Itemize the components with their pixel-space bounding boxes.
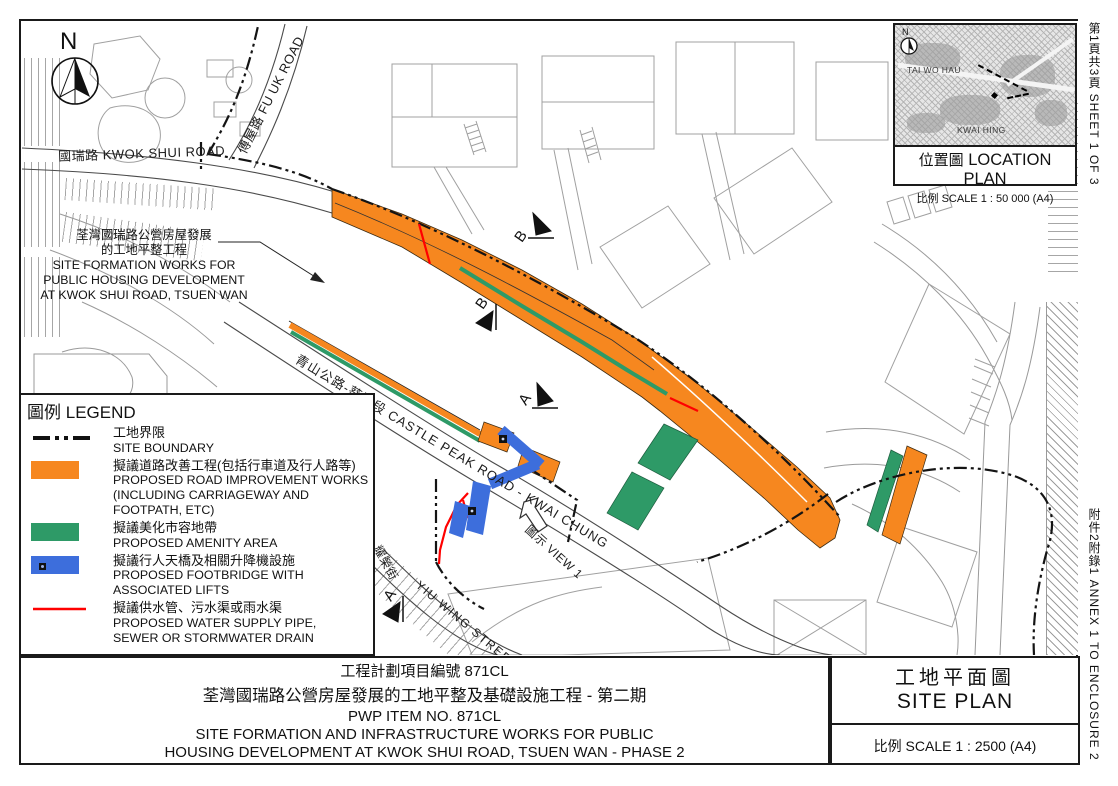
project-no-zh: 工程計劃項目編號 871CL <box>21 660 828 681</box>
site-annotation: 荃灣國瑞路公營房屋發展 的工地平整工程 SITE FORMATION WORKS… <box>24 228 264 303</box>
inset-area-label: KWAI HING <box>957 125 1006 135</box>
legend-title: 圖例 LEGEND <box>21 395 373 424</box>
legend-item-road-improvement: 擬議道路改善工程(包括行車道及行人路等) PROPOSED ROAD IMPRO… <box>21 457 373 520</box>
annex-note: 附件2附錄1 ANNEX 1 TO ENCLOSURE 2 <box>1086 508 1103 761</box>
footbridge-swatch <box>31 556 79 574</box>
legend-text: PROPOSED WATER SUPPLY PIPE, <box>113 616 369 631</box>
inset-north-arrow <box>898 35 920 57</box>
legend-text: 擬議道路改善工程(包括行車道及行人路等) <box>113 458 369 474</box>
legend-item-amenity-area: 擬議美化市容地帶 PROPOSED AMENITY AREA <box>21 519 373 552</box>
legend-item-water-pipe: 擬議供水管、污水渠或雨水渠 PROPOSED WATER SUPPLY PIPE… <box>21 599 373 647</box>
drawing-scale-text: 比例 SCALE 1 : 2500 (A4) <box>874 738 1037 754</box>
legend-text: FOOTPATH, ETC) <box>113 503 369 518</box>
location-plan-map: TAI WO HAU KWAI HING N <box>895 25 1075 145</box>
drawing-scale: 比例 SCALE 1 : 2500 (A4) <box>832 736 1078 756</box>
title-block-drawing: 工地平面圖 SITE PLAN 比例 SCALE 1 : 2500 (A4) <box>830 656 1080 765</box>
project-title-en: HOUSING DEVELOPMENT AT KWOK SHUI ROAD, T… <box>21 744 828 761</box>
legend-text: SEWER OR STORMWATER DRAIN <box>113 631 369 646</box>
legend-text: 擬議供水管、污水渠或雨水渠 <box>113 600 369 616</box>
legend-text: PROPOSED FOOTBRIDGE WITH <box>113 568 369 583</box>
inset-area-label: TAI WO HAU <box>907 65 961 75</box>
site-plan-sheet: N 國瑞路 KWOK SHUI ROAD 傅屋路 FU UK ROAD 青山公路… <box>0 0 1118 786</box>
site-boundary-symbol <box>27 425 113 447</box>
lift-icon <box>39 563 46 570</box>
amenity-area-swatch <box>31 523 79 541</box>
legend: 圖例 LEGEND 工地界限 SITE BOUNDARY 擬議道路改善工程(包括… <box>19 393 375 656</box>
drawing-title-en: SITE PLAN <box>832 690 1078 714</box>
legend-title-zh: 圖例 <box>27 403 61 422</box>
site-annotation-line: PUBLIC HOUSING DEVELOPMENT <box>24 273 264 288</box>
location-plan: TAI WO HAU KWAI HING N 位置圖 LOCATION PLAN… <box>893 23 1077 186</box>
location-plan-title-zh: 位置圖 <box>919 152 964 169</box>
legend-text: 擬議美化市容地帶 <box>113 520 369 536</box>
sheet-number-note: 第1頁共3頁 SHEET 1 OF 3 <box>1086 22 1103 186</box>
site-annotation-line: 的工地平整工程 <box>24 243 264 258</box>
project-no-en: PWP ITEM NO. 871CL <box>21 708 828 725</box>
drawing-title-zh: 工地平面圖 <box>832 661 1078 690</box>
legend-text: PROPOSED AMENITY AREA <box>113 536 369 551</box>
title-block-project: 工程計劃項目編號 871CL 荃灣國瑞路公營房屋發展的工地平整及基礎設施工程 -… <box>19 656 830 765</box>
legend-title-en: LEGEND <box>66 403 136 422</box>
location-plan-caption: 位置圖 LOCATION PLAN 比例 SCALE 1 : 50 000 (A… <box>895 145 1075 184</box>
site-annotation-line: SITE FORMATION WORKS FOR <box>24 258 264 273</box>
project-title-zh: 荃灣國瑞路公營房屋發展的工地平整及基礎設施工程 - 第二期 <box>21 682 828 706</box>
legend-item-site-boundary: 工地界限 SITE BOUNDARY <box>21 424 373 457</box>
water-pipe-symbol <box>27 600 113 618</box>
legend-text: (INCLUDING CARRIAGEWAY AND <box>113 488 369 503</box>
legend-text: ASSOCIATED LIFTS <box>113 583 369 598</box>
legend-text: PROPOSED ROAD IMPROVEMENT WORKS <box>113 473 369 488</box>
north-arrow-label: N <box>60 28 77 56</box>
site-annotation-line: AT KWOK SHUI ROAD, TSUEN WAN <box>24 288 264 303</box>
legend-text: SITE BOUNDARY <box>113 441 369 456</box>
legend-text: 工地界限 <box>113 425 369 441</box>
legend-item-footbridge: 擬議行人天橋及相關升降機設施 PROPOSED FOOTBRIDGE WITH … <box>21 552 373 600</box>
location-plan-title-en: LOCATION PLAN <box>963 151 1051 188</box>
legend-text: 擬議行人天橋及相關升降機設施 <box>113 553 369 569</box>
project-title-en: SITE FORMATION AND INFRASTRUCTURE WORKS … <box>21 726 828 743</box>
road-improvement-swatch <box>31 461 79 479</box>
location-plan-scale: 比例 SCALE 1 : 50 000 (A4) <box>895 190 1075 206</box>
site-annotation-line: 荃灣國瑞路公營房屋發展 <box>24 228 264 243</box>
drawing-title: 工地平面圖 SITE PLAN <box>832 661 1078 725</box>
